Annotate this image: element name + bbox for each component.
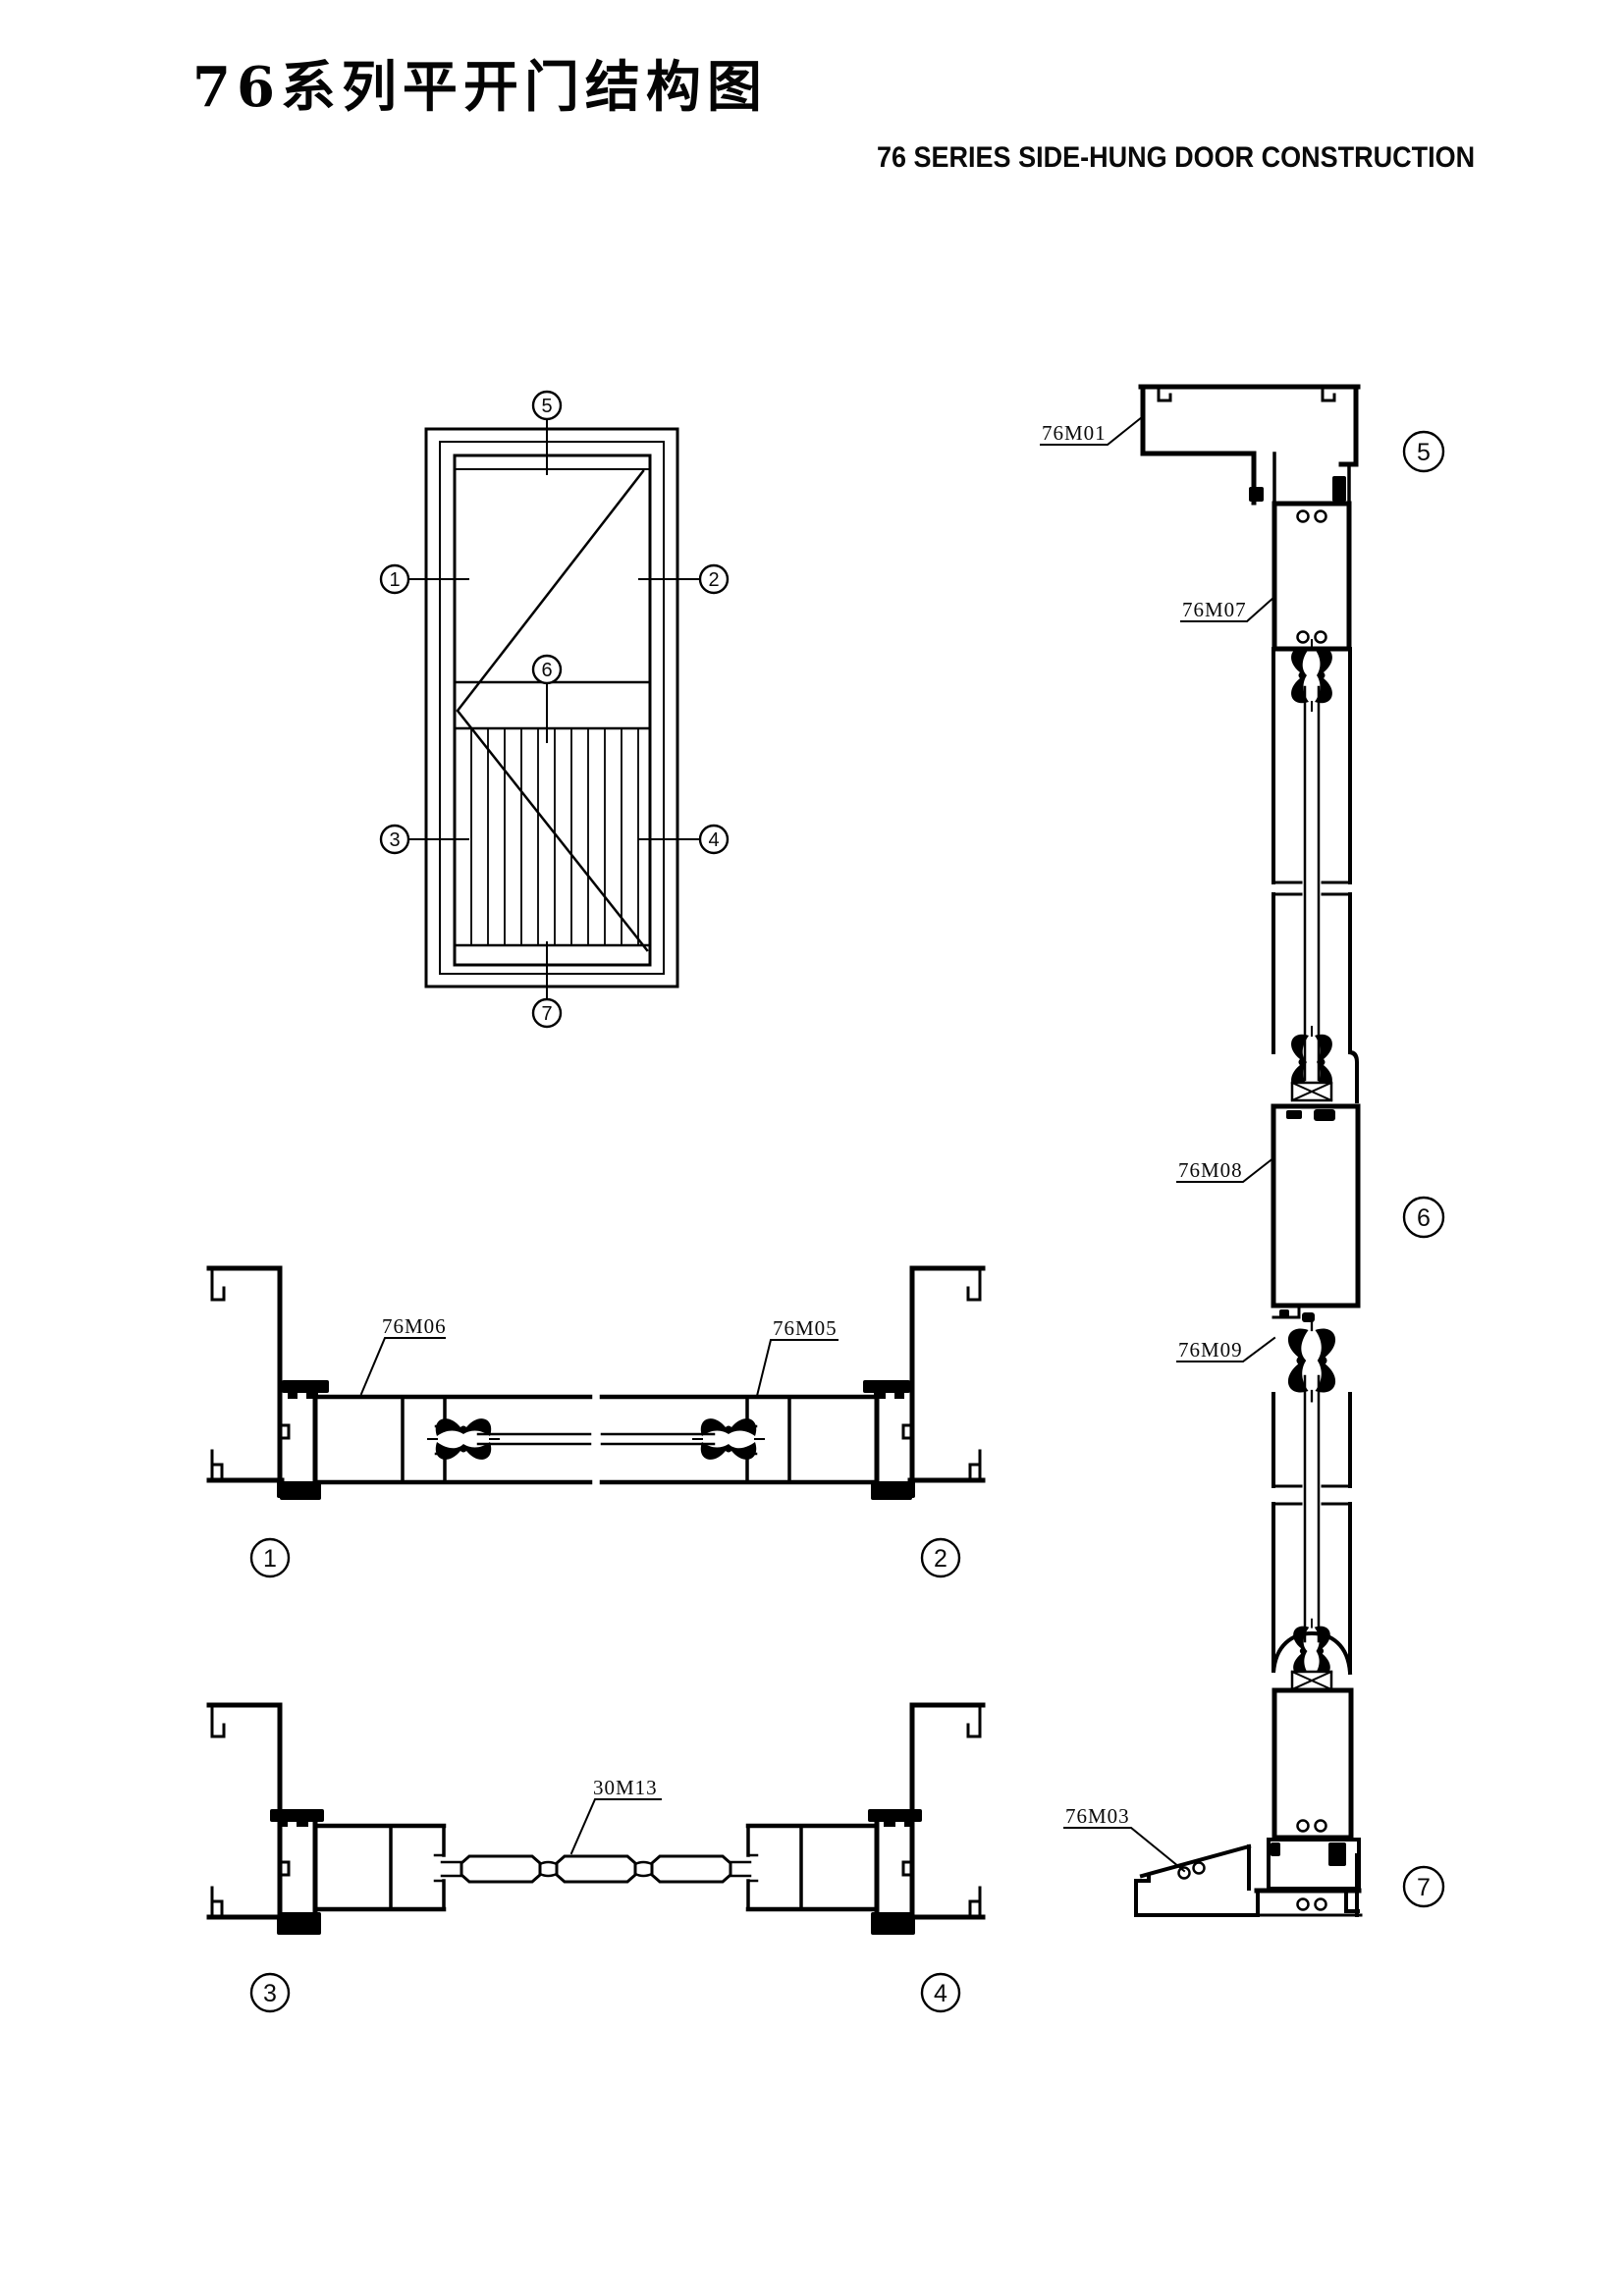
louver-slat-chain	[461, 1856, 730, 1882]
detail-marker-5: 5	[1404, 432, 1443, 471]
elevation-marker-1: 1	[381, 565, 408, 593]
svg-text:3: 3	[263, 1980, 277, 2007]
elevation-marker-5: 5	[533, 392, 561, 419]
glazing-bead-zone	[1273, 1320, 1350, 1641]
svg-text:4: 4	[708, 829, 719, 851]
elevation-marker-3: 3	[381, 826, 408, 853]
label-louver-slat: 30M13	[593, 1776, 658, 1799]
svg-text:2: 2	[708, 569, 719, 591]
svg-text:7: 7	[1417, 1874, 1431, 1901]
detail-marker-2: 2	[922, 1539, 959, 1576]
svg-text:7: 7	[541, 1003, 552, 1025]
upper-glass-run	[1273, 687, 1357, 1101]
row3-labels: 30M13	[571, 1776, 661, 1853]
row1-labels: 76M06 76M05	[361, 1314, 838, 1396]
svg-text:5: 5	[1417, 439, 1431, 466]
vertical-section-labels: 76M01 76M07 76M08 76M09 76M03	[1041, 417, 1274, 1871]
threshold-profile	[1136, 1840, 1361, 1915]
vertical-section: 76M01 76M07 76M08 76M09 76M03 5 6 7	[1041, 387, 1443, 1915]
label-lock-stile: 76M05	[773, 1316, 838, 1340]
elevation-marker-7: 7	[533, 999, 561, 1027]
elevation-marker-2: 2	[700, 565, 728, 593]
door-elevation: 5 1 2 6 3 4 7	[381, 392, 728, 1027]
svg-text:5: 5	[541, 396, 552, 417]
detail-marker-4: 4	[922, 1974, 959, 2011]
svg-text:4: 4	[934, 1980, 947, 2007]
detail-marker-6: 6	[1404, 1198, 1443, 1237]
svg-text:6: 6	[1417, 1204, 1431, 1232]
head-frame-profile	[1141, 387, 1358, 504]
label-head-frame: 76M01	[1042, 421, 1107, 445]
horizontal-section-row-3-4: 30M13 3 4	[209, 1705, 983, 2011]
label-top-rail: 76M07	[1182, 598, 1247, 621]
svg-text:6: 6	[541, 660, 552, 681]
label-mid-rail: 76M08	[1178, 1158, 1243, 1182]
construction-drawing: 5 1 2 6 3 4 7	[0, 0, 1623, 2296]
svg-text:1: 1	[389, 569, 400, 591]
label-hinge-stile: 76M06	[382, 1314, 447, 1338]
detail-marker-3: 3	[251, 1974, 289, 2011]
elevation-marker-4: 4	[700, 826, 728, 853]
bottom-rail-profile	[1273, 1620, 1351, 1838]
label-glazing-bead: 76M09	[1178, 1338, 1243, 1362]
svg-text:3: 3	[389, 829, 400, 851]
door-swing-lines	[458, 471, 647, 950]
svg-text:1: 1	[263, 1545, 277, 1573]
label-threshold-ramp: 76M03	[1065, 1804, 1130, 1828]
elevation-marker-6: 6	[533, 656, 561, 683]
mid-rail-profile	[1273, 1106, 1358, 1322]
top-rail-profile	[1273, 504, 1350, 711]
horizontal-section-row-1-2: 76M06 76M05 1 2	[209, 1268, 983, 1576]
svg-text:2: 2	[934, 1545, 947, 1573]
detail-marker-1: 1	[251, 1539, 289, 1576]
detail-marker-7: 7	[1404, 1867, 1443, 1906]
